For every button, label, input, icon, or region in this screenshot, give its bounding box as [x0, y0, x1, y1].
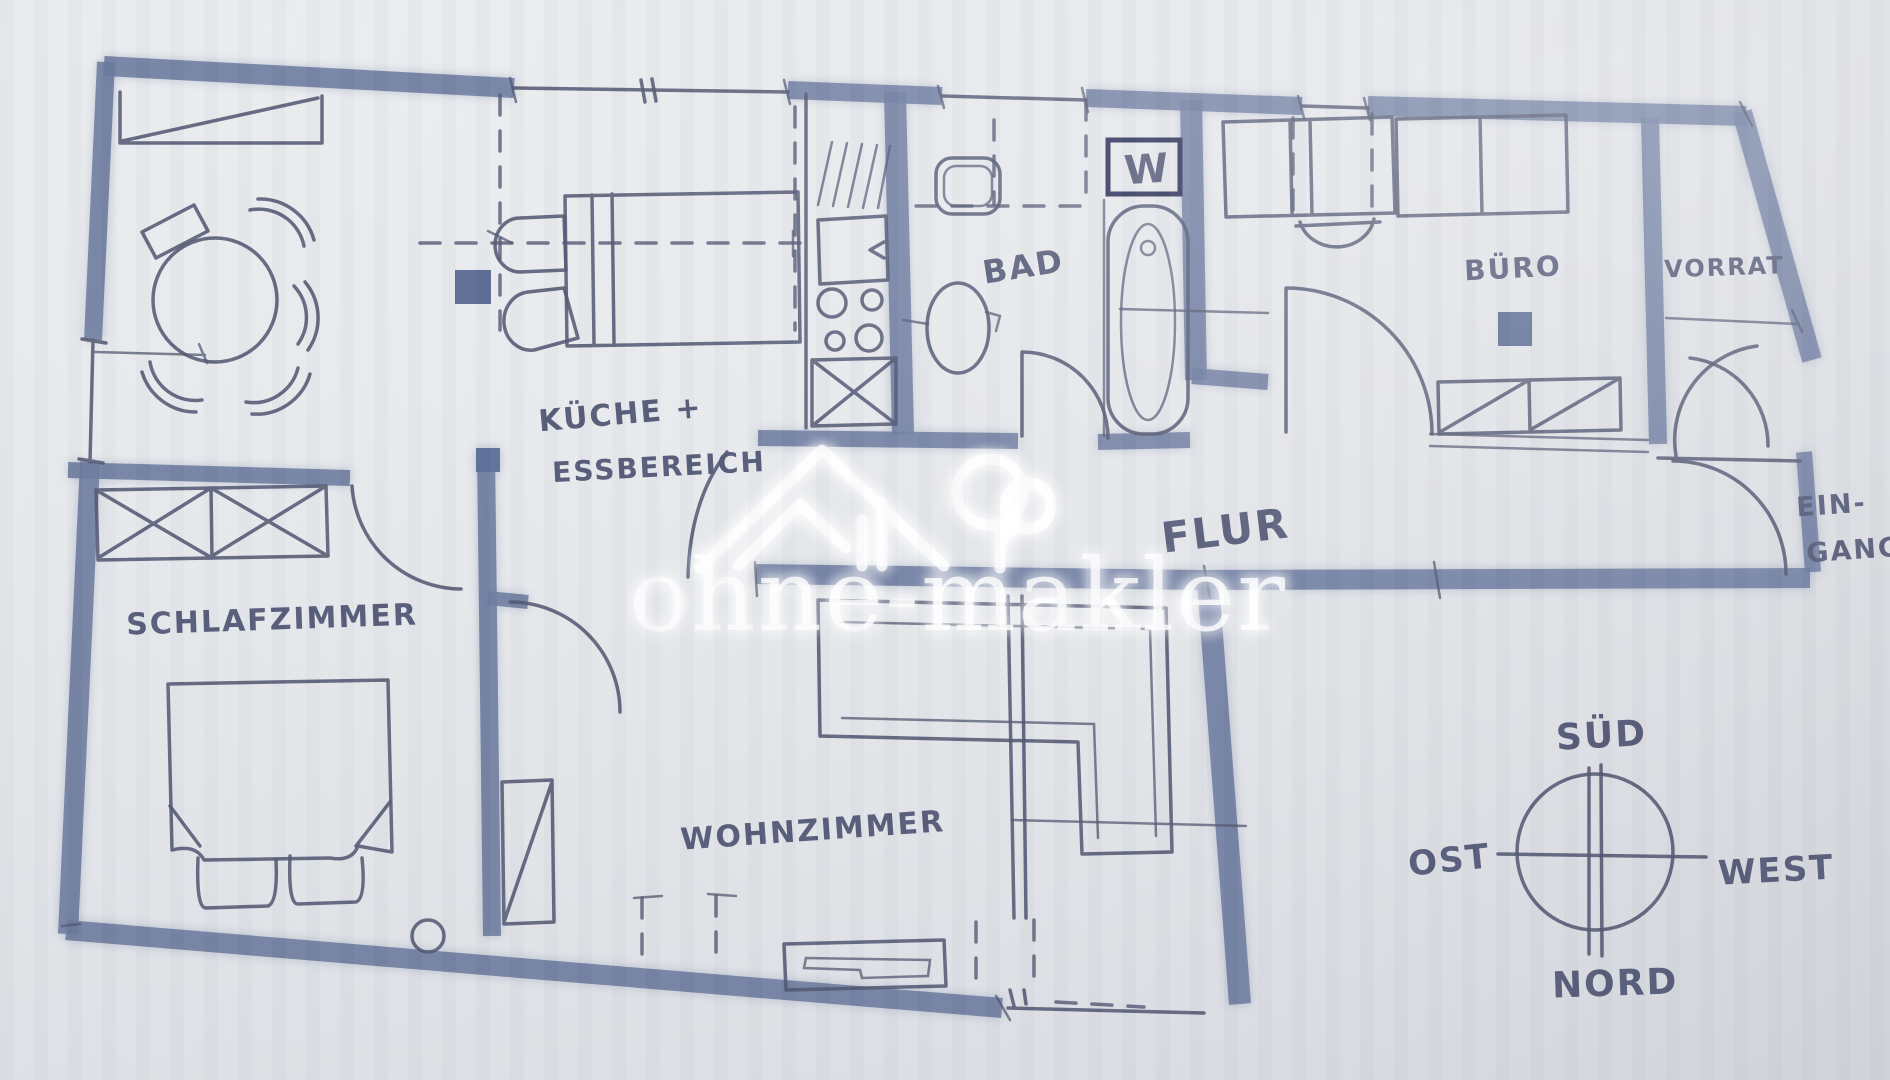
- cabinet-icon: [812, 358, 896, 426]
- label-entrance-line1: EIN-: [1795, 487, 1867, 523]
- compass-south: SÜD: [1555, 712, 1648, 759]
- desk-icon: [1223, 117, 1395, 217]
- compass-west: WEST: [1717, 848, 1835, 894]
- label-kitchen-line1: KÜCHE +: [537, 388, 704, 439]
- kitchen-counter-icons: [812, 142, 896, 426]
- floorplan-drawing: W SÜD OST WEST NORD KÜCHE + ES: [0, 0, 1890, 1080]
- sideboard-icon: [1438, 378, 1621, 434]
- compass-north: NORD: [1551, 961, 1679, 1006]
- door-living: [510, 602, 620, 712]
- pillow-icon: [198, 858, 277, 908]
- kitchen-island-icon: [495, 192, 800, 350]
- floorplan-photo: W SÜD OST WEST NORD KÜCHE + ES: [0, 0, 1890, 1080]
- wardrobe-icon: [96, 486, 328, 560]
- watermark-text: ohne-makler: [629, 537, 1287, 654]
- living-room-icons: [502, 600, 1172, 990]
- label-bedroom: SCHLAFZIMMER: [126, 598, 419, 643]
- wardrobe-icon: [1396, 115, 1568, 216]
- desk-chair-icon: [1296, 219, 1380, 247]
- bedroom-icons: [96, 486, 444, 952]
- door-entrance-inner: [1673, 461, 1786, 574]
- label-entrance-line2: GANG: [1805, 532, 1890, 570]
- door-bedroom: [352, 486, 461, 589]
- stove-icon: [818, 289, 882, 351]
- compass-east: OST: [1406, 836, 1492, 884]
- door-bath: [1022, 352, 1108, 438]
- kitchen-sink-icon: [818, 216, 888, 284]
- compass-rose: SÜD OST WEST NORD: [1406, 712, 1835, 1007]
- label-living-room: WOHNZIMMER: [679, 804, 946, 857]
- label-storage: VORRAT: [1664, 251, 1786, 283]
- dining-table-icon: [142, 199, 318, 414]
- pillow-icon: [290, 856, 363, 904]
- pillar-icon: [1498, 312, 1532, 346]
- label-office: BÜRO: [1463, 248, 1562, 287]
- label-kitchen-line2: ESSBEREICH: [551, 445, 766, 489]
- door-storage: [1690, 358, 1768, 446]
- bed-icon: [168, 680, 392, 860]
- stool-icon: [412, 920, 444, 952]
- drainer-icon: [818, 142, 890, 208]
- window-sill-icon: [120, 92, 322, 143]
- toilet-icon: [944, 166, 992, 206]
- label-bath: BAD: [980, 241, 1067, 291]
- bathroom-icons: W: [903, 140, 1188, 436]
- cabinet-icon: [502, 780, 554, 924]
- watermark: ohne-makler: [629, 450, 1287, 654]
- door-entrance-outer: [1675, 346, 1757, 456]
- washer-label: W: [1123, 145, 1172, 194]
- bathtub-icon: [1108, 206, 1188, 434]
- door-office: [1286, 288, 1432, 434]
- bath-sink-icon: [927, 283, 989, 373]
- pillar-icon: [455, 270, 491, 304]
- washing-machine-icon: W: [1108, 140, 1180, 194]
